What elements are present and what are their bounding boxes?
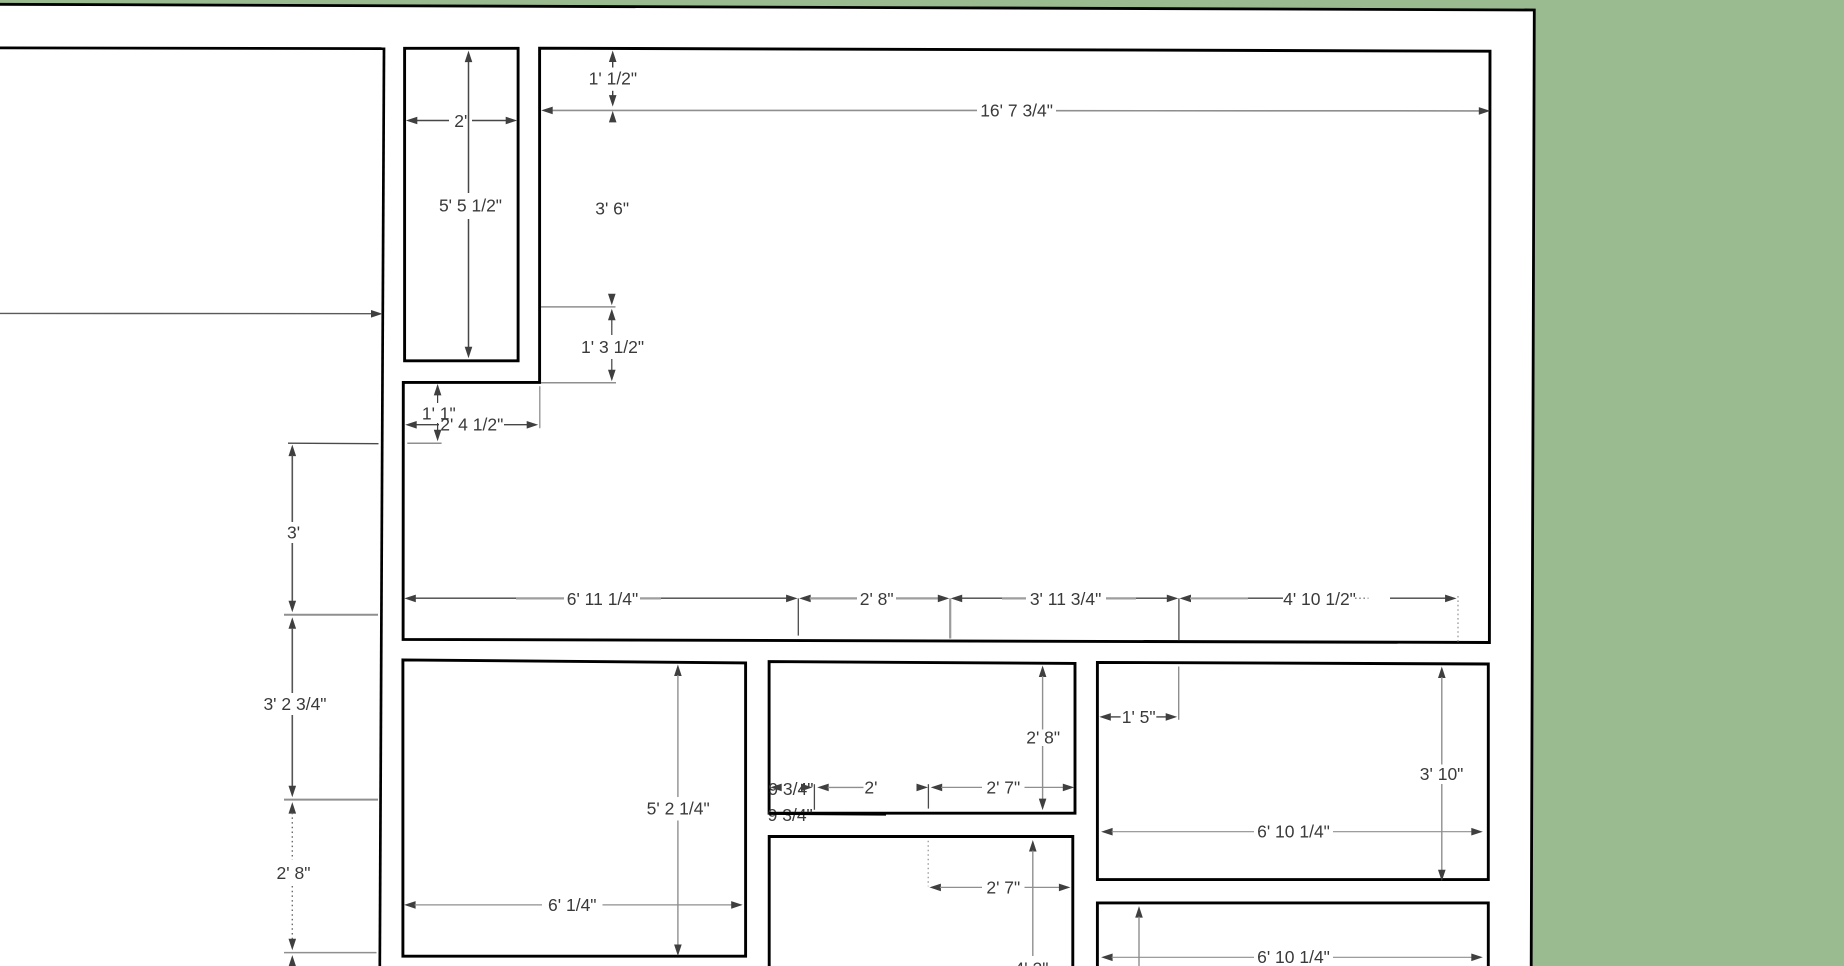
svg-text:6' 11 1/4": 6' 11 1/4" — [567, 589, 639, 609]
svg-text:1' 1": 1' 1" — [422, 403, 456, 423]
svg-text:3': 3' — [287, 523, 300, 543]
svg-text:3' 6": 3' 6" — [595, 199, 629, 219]
svg-text:2': 2' — [454, 111, 467, 131]
svg-text:2' 8": 2' 8" — [277, 863, 311, 883]
svg-text:1' 3 1/2": 1' 3 1/2" — [581, 337, 644, 357]
svg-text:4' 2": 4' 2" — [1015, 959, 1049, 966]
svg-text:1' 1/2": 1' 1/2" — [589, 69, 637, 89]
svg-text:2' 7": 2' 7" — [986, 777, 1020, 797]
svg-text:5' 5 1/2": 5' 5 1/2" — [439, 196, 502, 216]
svg-text:3' 2 3/4": 3' 2 3/4" — [263, 694, 326, 714]
svg-text:3' 10": 3' 10" — [1420, 764, 1464, 784]
svg-text:1' 5": 1' 5" — [1122, 707, 1156, 727]
svg-text:6' 10 1/4": 6' 10 1/4" — [1257, 822, 1330, 842]
svg-text:2' 8": 2' 8" — [1026, 728, 1060, 748]
svg-text:2' 7": 2' 7" — [986, 877, 1020, 897]
svg-text:3' 11 3/4": 3' 11 3/4" — [1030, 589, 1102, 609]
svg-text:2' 8": 2' 8" — [860, 589, 894, 609]
svg-text:2': 2' — [864, 778, 877, 798]
svg-text:16' 7 3/4": 16' 7 3/4" — [980, 100, 1053, 120]
svg-text:4' 10 1/2": 4' 10 1/2" — [1283, 589, 1356, 609]
svg-text:6' 1/4": 6' 1/4" — [548, 895, 596, 915]
svg-text:5' 2 1/4": 5' 2 1/4" — [647, 799, 710, 819]
svg-text:6' 10 1/4": 6' 10 1/4" — [1257, 947, 1330, 966]
